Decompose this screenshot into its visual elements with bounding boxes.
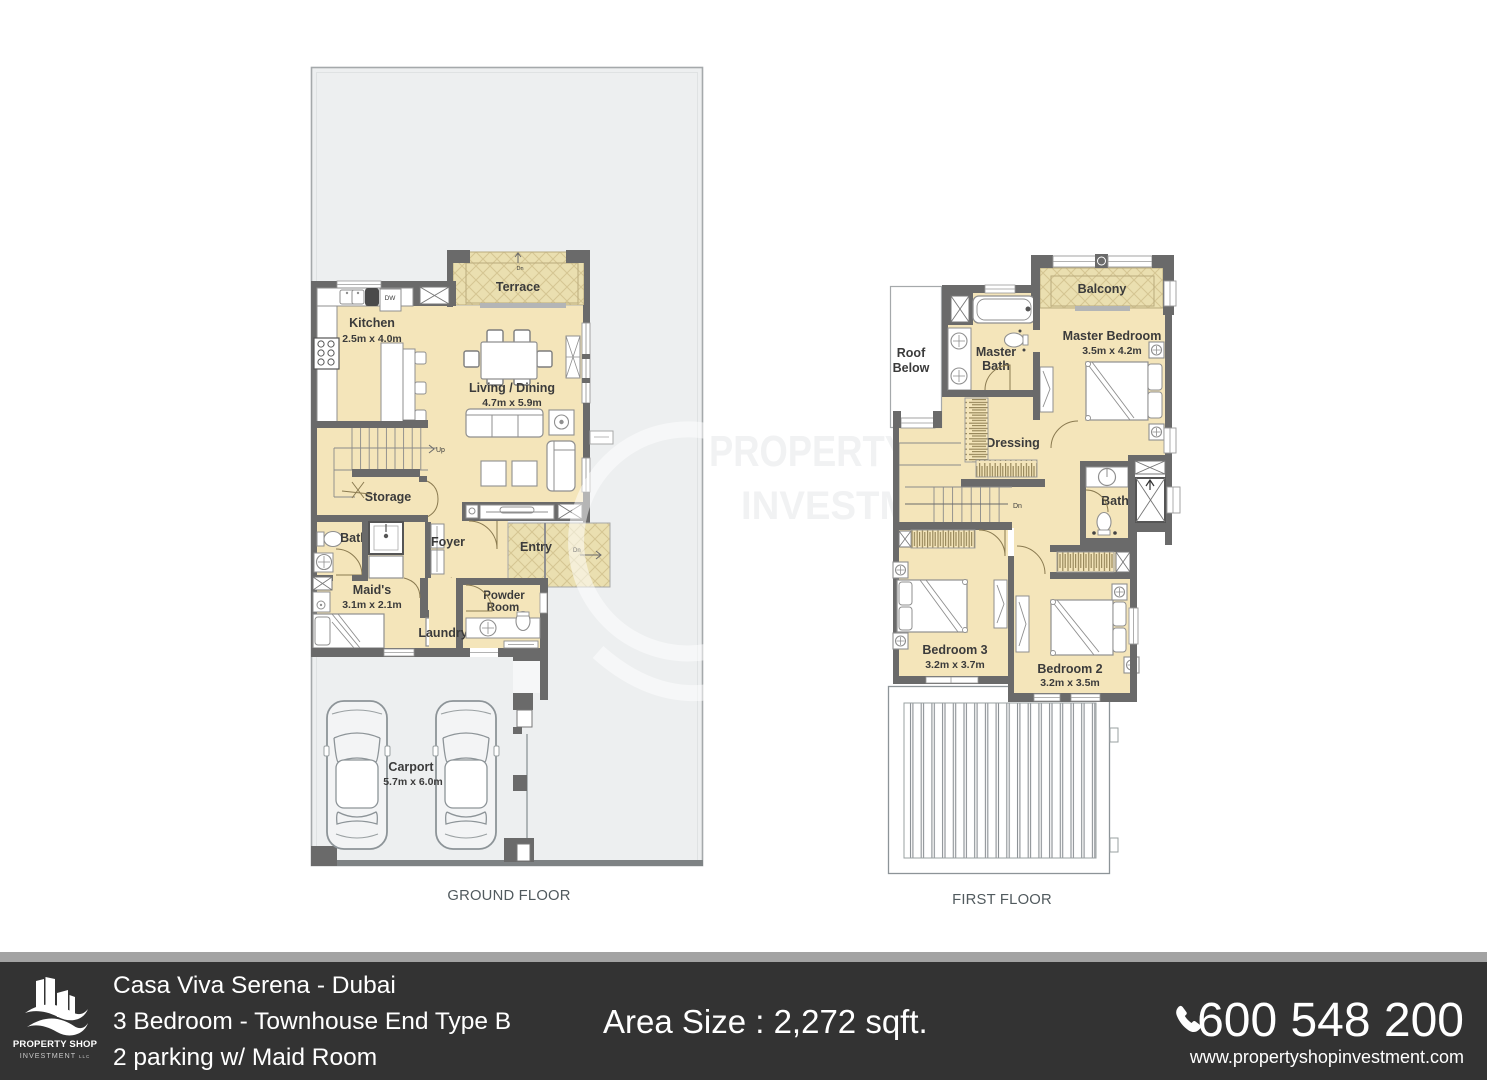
svg-text:Kitchen: Kitchen [349, 316, 395, 330]
svg-text:Bedroom 3: Bedroom 3 [922, 643, 987, 657]
svg-text:FIRST FLOOR: FIRST FLOOR [952, 892, 1052, 908]
svg-text:Balcony: Balcony [1078, 282, 1127, 296]
svg-text:Dressing: Dressing [986, 436, 1040, 450]
svg-text:Terrace: Terrace [496, 280, 540, 294]
svg-text:3 Bedroom - Townhouse End Type: 3 Bedroom - Townhouse End Type B [113, 1008, 511, 1035]
svg-text:Living / Dining: Living / Dining [469, 381, 555, 395]
svg-text:Storage: Storage [365, 490, 412, 504]
svg-text:Dn: Dn [516, 266, 523, 272]
svg-text:Bedroom 2: Bedroom 2 [1037, 662, 1102, 676]
svg-text:www.propertyshopinvestment.com: www.propertyshopinvestment.com [1189, 1047, 1464, 1067]
svg-text:Maid's: Maid's [353, 583, 391, 597]
svg-text:Master: Master [976, 345, 1016, 359]
svg-text:Up: Up [436, 447, 445, 454]
svg-text:Laundry: Laundry [418, 626, 467, 640]
svg-text:Carport: Carport [388, 760, 434, 774]
svg-text:Bath: Bath [982, 359, 1010, 373]
svg-text:Dn: Dn [1013, 503, 1022, 510]
svg-text:600 548 200: 600 548 200 [1197, 994, 1464, 1047]
svg-text:Roof: Roof [897, 346, 926, 360]
svg-text:3.2m x 3.7m: 3.2m x 3.7m [925, 659, 985, 671]
svg-text:PROPERTY: PROPERTY [709, 427, 909, 476]
svg-text:2 parking w/ Maid Room: 2 parking w/ Maid Room [113, 1044, 377, 1071]
svg-text:3.1m x 2.1m: 3.1m x 2.1m [342, 599, 402, 611]
svg-text:3.5m x 4.2m: 3.5m x 4.2m [1082, 345, 1142, 357]
svg-text:GROUND FLOOR: GROUND FLOOR [447, 888, 570, 904]
svg-text:Foyer: Foyer [431, 535, 465, 549]
svg-text:4.7m x 5.9m: 4.7m x 5.9m [482, 397, 542, 409]
svg-text:5.7m x 6.0m: 5.7m x 6.0m [383, 776, 443, 788]
svg-text:Area Size : 2,272 sqft.: Area Size : 2,272 sqft. [603, 1003, 928, 1040]
svg-text:3.2m x 3.5m: 3.2m x 3.5m [1040, 677, 1100, 689]
svg-text:Entry: Entry [520, 540, 552, 554]
svg-text:PROPERTY SHOP: PROPERTY SHOP [13, 1039, 98, 1050]
svg-text:Casa Viva Serena - Dubai: Casa Viva Serena - Dubai [113, 972, 396, 999]
svg-text:DW: DW [385, 295, 397, 302]
svg-text:Master Bedroom: Master Bedroom [1063, 329, 1162, 343]
svg-text:Below: Below [893, 361, 930, 375]
svg-text:2.5m x 4.0m: 2.5m x 4.0m [342, 333, 402, 345]
